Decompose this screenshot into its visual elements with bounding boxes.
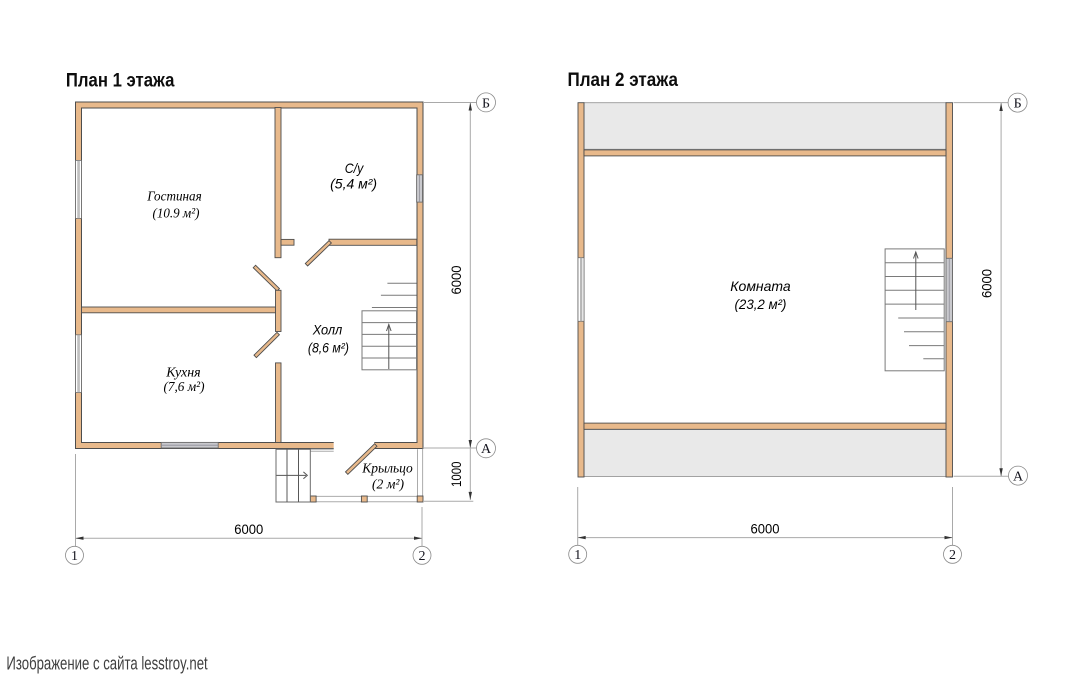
svg-text:1000: 1000 [449, 462, 464, 488]
svg-text:(2 м²): (2 м²) [372, 478, 404, 493]
svg-text:1: 1 [71, 549, 78, 564]
svg-text:2: 2 [949, 548, 956, 563]
svg-text:2: 2 [419, 549, 426, 564]
svg-text:(5,4 м²): (5,4 м²) [330, 176, 377, 192]
svg-text:6000: 6000 [449, 266, 464, 295]
svg-text:Изображение с сайта lesstroy.n: Изображение с сайта lesstroy.net [6, 653, 207, 673]
svg-text:Крыльцо: Крыльцо [361, 462, 412, 477]
svg-text:А: А [481, 442, 492, 457]
svg-text:1: 1 [574, 548, 581, 563]
svg-text:А: А [1013, 470, 1024, 485]
svg-text:Гостиная: Гостиная [146, 190, 201, 205]
svg-text:(8,6 м²): (8,6 м²) [308, 339, 349, 355]
svg-text:Холл: Холл [312, 321, 342, 337]
svg-text:План 2 этажа: План 2 этажа [568, 70, 679, 91]
svg-text:Б: Б [1014, 97, 1022, 112]
svg-text:План 1 этажа: План 1 этажа [66, 70, 175, 91]
svg-text:Б: Б [482, 96, 490, 111]
svg-text:Комната: Комната [730, 278, 791, 294]
svg-text:6000: 6000 [751, 521, 780, 537]
svg-text:6000: 6000 [234, 521, 263, 537]
svg-text:Кухня: Кухня [165, 366, 200, 381]
svg-text:6000: 6000 [979, 269, 994, 298]
svg-text:(7,6 м²): (7,6 м²) [164, 380, 205, 395]
svg-text:С/у: С/у [345, 160, 364, 176]
svg-text:(10.9 м²): (10.9 м²) [153, 207, 200, 222]
svg-text:(23,2 м²): (23,2 м²) [735, 296, 787, 312]
